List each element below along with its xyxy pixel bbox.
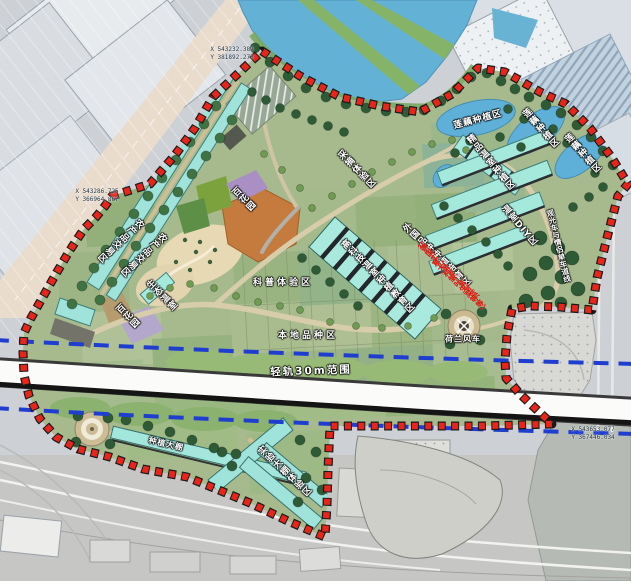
- region-label-science: 科普体验区: [253, 278, 313, 288]
- coordinate-y: Y 381892.273: [210, 54, 253, 62]
- coordinate-y: Y 367446.034: [571, 434, 614, 442]
- region-label-dutch-windmill: 荷兰风车: [445, 336, 481, 345]
- region-label-local-species: 本地品种区: [278, 331, 338, 341]
- coordinate-callout-southeast: X 543653.077 Y 367446.034: [571, 426, 614, 442]
- coordinate-callout-north: X 543232.389 Y 381892.273: [210, 46, 253, 62]
- cad-building: [0, 515, 61, 557]
- coordinate-x: X 543653.077: [571, 426, 614, 434]
- coordinate-x: X 543232.389: [210, 46, 253, 54]
- coordinate-callout-west: X 543286.725 Y 366964.867: [75, 188, 118, 204]
- site-plan-graphic: [0, 0, 631, 581]
- coordinate-x: X 543286.725: [75, 188, 118, 196]
- site-plan-canvas: 农产品交易区 农产品交易区 采摘体验区 莲藕种植区 莲藕种植区 莲藕种植区 精品…: [0, 0, 631, 581]
- coordinate-y: Y 366964.867: [75, 196, 118, 204]
